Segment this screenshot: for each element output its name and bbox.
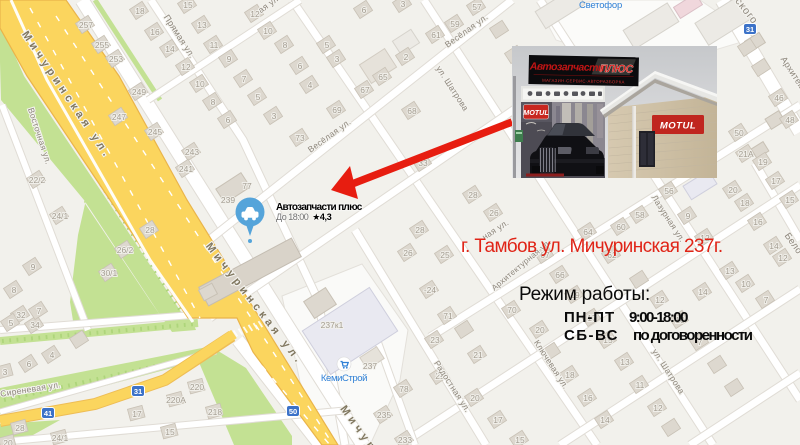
svg-text:Автозапчасти: Автозапчасти <box>529 60 605 74</box>
svg-text:MOTUL: MOTUL <box>660 121 696 132</box>
svg-text:ПЛЮС: ПЛЮС <box>600 63 635 76</box>
svg-text:MOTUL: MOTUL <box>523 108 549 117</box>
